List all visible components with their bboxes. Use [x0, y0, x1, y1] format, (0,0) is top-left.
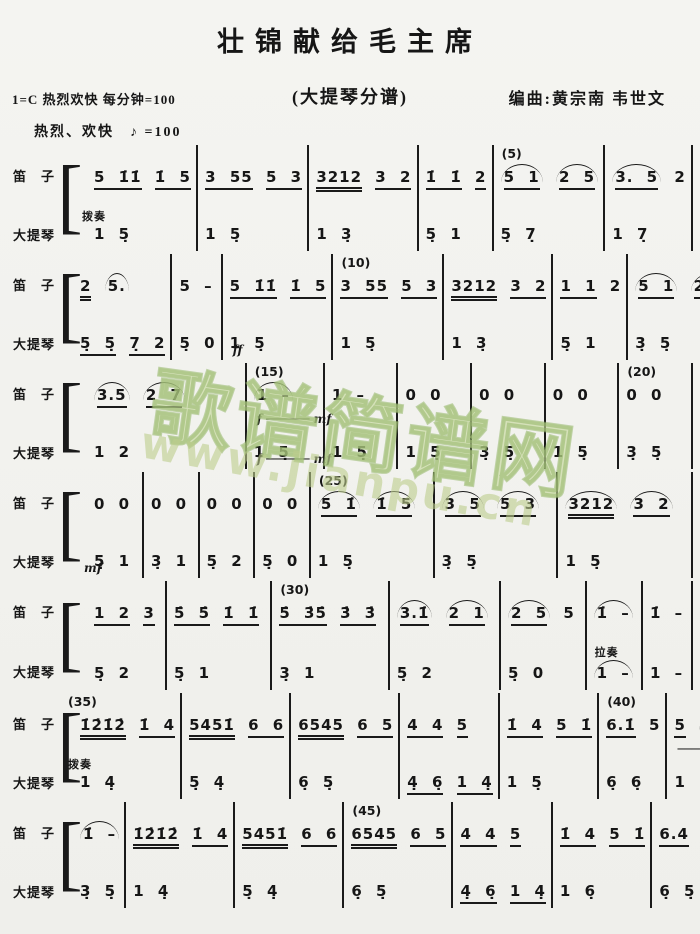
notes-text: 1 6̣ — [560, 881, 645, 901]
measure: 1 – — [324, 363, 398, 429]
notes-text: 5̣ 0 — [179, 333, 215, 353]
notes-text: 4̣ 6̣ 1 4̣ — [407, 772, 492, 792]
measure: 1 2 3 — [74, 581, 166, 647]
dynamic-marking: ff — [233, 343, 243, 357]
measure: 1 5̣ — [332, 320, 443, 360]
measure: 3̣ 1 — [143, 538, 199, 578]
notes-text: 5̣ 4̣ — [189, 772, 284, 792]
measure: 3.5 2 7 — [74, 363, 246, 429]
measure: 1 7̣ — [604, 211, 692, 251]
notes-text: 3̣ 5̣ — [80, 881, 119, 901]
measure: 1 5̣ — [666, 759, 700, 799]
measure: 2 5 5 — [500, 581, 586, 647]
measure: 1̇ – — [60, 802, 125, 868]
notes-text: 5 – — [179, 276, 215, 296]
notes-text: 3̣ 5̣ — [626, 442, 686, 462]
measure-number-marker: (25) — [319, 473, 348, 488]
measure: 0 0 — [143, 472, 199, 538]
flute-instrument-label: 笛 子 — [6, 145, 74, 211]
notes-text: 1̇2̇1̇2̇ 1̇ 4 — [80, 715, 175, 735]
notes-text: 0 0 — [94, 494, 137, 514]
measure: 3212 3 2 — [557, 472, 692, 538]
measure: 1 1 2 — [552, 254, 627, 320]
measure: 5̣ 1 — [552, 320, 627, 360]
tempo-marking: 热烈、欢快 ♪ =100 — [34, 121, 700, 141]
measure: 1 3̣ — [308, 211, 417, 251]
measure: 0 0 — [254, 472, 310, 538]
measure: 拨奏1 5̣ — [74, 211, 197, 251]
measure-number-marker: (20) — [627, 364, 656, 379]
notes-text: 3.5 2 7 — [94, 382, 240, 405]
measure: 1 5̣f ────── mf — [246, 429, 324, 469]
measure: 4 4 5 — [399, 693, 498, 759]
measure: 1 5̣ — [324, 429, 398, 469]
notes-text: 5 1̇. — [674, 712, 700, 735]
measure: 6̣ 6̣ — [598, 759, 666, 799]
notes-text: 5̣ 2 — [94, 663, 160, 683]
measure: 3212 3 2 — [443, 254, 552, 320]
measure: 0 0 — [397, 363, 471, 429]
cello-instrument-label: 大提琴 — [6, 868, 60, 908]
cello-instrument-label: 大提琴 — [6, 538, 74, 578]
measure: 1 5̣ — [197, 211, 308, 251]
notes-text: 0 0 — [151, 494, 193, 514]
notes-text: 3̣ 1 — [151, 551, 193, 571]
notes-text: 5 1̇ 1̇ 5 — [318, 491, 428, 514]
measure: 5 1 2 5 — [627, 254, 700, 320]
measure: 3 55 5 3 — [197, 145, 308, 211]
notes-text: 1 – — [254, 382, 318, 405]
notes-text: 1 – — [332, 385, 392, 405]
notes-text: 5̣ 4̣ — [242, 881, 337, 901]
notes-text: 5451̇ 6 6 — [242, 824, 337, 844]
measure: 拉奏1 – — [586, 647, 642, 690]
measure: 6̣ 5̣ — [651, 868, 700, 908]
notes-text: 5̣ 1 — [426, 224, 487, 244]
notes-text: 0 0 — [405, 385, 465, 405]
notes-text: 3 55 5 3 — [205, 167, 302, 187]
measure: 拨奏1 4̣ — [60, 759, 181, 799]
flute-staff-row: 笛 子0 00 00 00 0(25)5 1̇ 1̇ 53 5 5 33212 … — [6, 472, 692, 538]
measure: 1 4̣ — [125, 868, 234, 908]
notes-text: 1 5̣ — [507, 772, 592, 792]
notes-text: 1 5̣ — [565, 551, 686, 571]
measure: 6.4 5 4 — [651, 802, 700, 868]
notes-text: 3̣ 1 — [279, 663, 383, 683]
measure: 1 5̣ — [397, 429, 471, 469]
measure: 5̇ 5̇ 1̇ 1̇ — [166, 581, 271, 647]
notes-text: 4̣ 6̣ 1 4̣ — [460, 881, 545, 901]
measure: 5̣ 1mf — [74, 538, 143, 578]
cello-staff-row: 大提琴1 21 5̣f ────── mf1 5̣1 5̣3̣ 5̣1 5̣3̣… — [6, 429, 692, 469]
flute-instrument-label: 笛 子 — [6, 693, 60, 759]
notes-text: 1 5̣ — [332, 442, 392, 462]
notes-text: 6545 6 5 — [298, 715, 393, 735]
notes-text: 5̣ 1 — [174, 663, 265, 683]
notes-text: 5 1 2 5 — [635, 273, 700, 296]
measure: 5̣ 2 — [74, 647, 166, 690]
notes-text: 1 5̣ — [405, 442, 465, 462]
notes-text: 1 – — [594, 660, 636, 683]
measure-number-marker: (35) — [68, 694, 97, 709]
notes-text: 1 5̣ — [674, 772, 700, 792]
score-page: 壮锦献给毛主席 1=C 热烈欢快 每分钟=100 (大提琴分谱) 编曲:黄宗南 … — [0, 0, 700, 934]
measure: 5451̇ 6 6 — [234, 802, 343, 868]
measure: 1 5̣ — [557, 538, 692, 578]
flute-instrument-label: 笛 子 — [6, 802, 60, 868]
systems-container: [笛 子5 1̇1̇ 1̇ 53 55 5 33212 3 21̇ 1̇ 2(5… — [0, 145, 700, 908]
notes-text: 1 5̣ — [553, 442, 613, 462]
measure: 3 5 5 3 — [434, 472, 558, 538]
measure: 5̣ 5̣ 7̣ 2 — [60, 320, 171, 360]
notes-text: 1 4̣ — [133, 881, 228, 901]
notes-text: 3212 3 2 — [565, 491, 686, 514]
cello-instrument-label: 大提琴 — [6, 320, 60, 360]
technique-label: 拨奏 — [68, 756, 92, 772]
notes-text: 1 1 2 — [560, 276, 621, 296]
measure: 3212 3 2 — [308, 145, 417, 211]
notes-text: 5 1̇1̇ 1̇ 5 — [230, 276, 327, 296]
measure: 1̇ – — [642, 581, 692, 647]
notes-text: 1 4̣ — [80, 772, 175, 792]
notes-text: 1̇ 4 5 1̇ — [560, 824, 645, 844]
notes-text: 3̣ 5̣ — [635, 333, 700, 353]
notes-text: 1 – — [650, 663, 686, 683]
measure: 5 1̇. ────── — [666, 693, 700, 759]
composer-credit: 编曲:黄宗南 韦世文 — [509, 85, 666, 109]
page-title: 壮锦献给毛主席 — [0, 0, 700, 59]
measure: (30)5̇ 3̇5̇ 3̇ 3̇ — [271, 581, 389, 647]
measure: 1 5̣ — [310, 538, 434, 578]
measure: 3̣ 5̣ — [471, 429, 545, 469]
measure-number-marker: (40) — [607, 694, 636, 709]
measure: 4 4 5 — [452, 802, 551, 868]
measure: 1̇ – — [586, 581, 642, 647]
notes-text: 1̇2̇1̇2̇ 1̇ 4 — [133, 824, 228, 844]
notes-text: 1 5̣ — [318, 551, 428, 571]
measure: 6545 6 5 — [290, 693, 399, 759]
flute-staff-row: 笛 子3.5 2 7(15)1 –f ────── mf1 –0 00 00 0… — [6, 363, 692, 429]
notes-text: 6̣ 6̣ — [606, 772, 660, 792]
measure-number-marker: (5) — [502, 146, 522, 161]
dynamic-marking: mf — [84, 561, 102, 575]
notes-text: 0 0 — [479, 385, 539, 405]
notes-text: 1̇ – — [80, 821, 119, 844]
notes-text: 3. 5 2 — [612, 164, 686, 187]
notes-text: 5̇ 3̇5̇ 3̇ 3̇ — [279, 603, 383, 623]
measure: (10)3 55 5 3 — [332, 254, 443, 320]
notes-text: 2 5 5 — [508, 600, 580, 623]
measure: 2 5. — [60, 254, 171, 320]
measure: (20)0 0 — [618, 363, 692, 429]
notes-text: 5̣ 2 — [207, 551, 249, 571]
notes-text: 6.4 5 4 — [659, 824, 700, 844]
measure: 1̇ 4 5 1̇ — [552, 802, 651, 868]
notes-text: 5̣ 0 — [262, 551, 304, 571]
notes-text: 1 5̣ — [230, 333, 327, 353]
notes-text: 1 5̣ — [205, 224, 302, 244]
measure: (40)6.1̇ 5 — [598, 693, 666, 759]
measure: 3̣ 5̣ — [627, 320, 700, 360]
notes-text: 5̇ 5̇ 1̇ 1̇ — [174, 603, 265, 623]
measure: 4̣ 6̣ 1 4̣ — [399, 759, 498, 799]
measure: 5̣ 2 — [389, 647, 500, 690]
measure: 1 – — [642, 647, 692, 690]
measure-number-marker: (15) — [255, 364, 284, 379]
cello-staff-row: 大提琴5̣ 1mf3̣ 15̣ 25̣ 01 5̣3̣ 5̣1 5̣ — [6, 538, 692, 578]
dynamic-marking: f ────── mf — [257, 412, 332, 426]
measure: 0 0 — [471, 363, 545, 429]
measure: 0 0 — [199, 472, 255, 538]
notes-text: 1 3̣ — [316, 224, 411, 244]
notes-text: 5̣ 0 — [508, 663, 580, 683]
measure: 6̣ 5̣ — [343, 868, 452, 908]
notes-text: 6.1̇ 5 — [606, 715, 660, 735]
measure: 5 1̇1̇ 1̇ 5 — [74, 145, 197, 211]
measure: 1̇ 4 5 1̇ — [499, 693, 598, 759]
flute-staff-row: 笛 子1̇ –1̇2̇1̇2̇ 1̇ 45451̇ 6 6(45)6545 6 … — [6, 802, 700, 868]
notes-text: 5̣ 1 — [560, 333, 621, 353]
measure: 3. 5 2 — [604, 145, 692, 211]
system-7: [笛 子1̇ –1̇2̇1̇2̇ 1̇ 45451̇ 6 6(45)6545 6… — [6, 802, 692, 908]
cello-staff-row: 大提琴5̣ 5̣ 7̣ 25̣ 01 5̣ff1 5̣1 3̣5̣ 13̣ 5̣ — [6, 320, 700, 360]
flute-staff-row: 笛 子1 2 35̇ 5̇ 1̇ 1̇(30)5̇ 3̇5̇ 3̇ 3̇3.1̇… — [6, 581, 692, 647]
notes-text: 1̇ – — [650, 603, 686, 623]
flute-instrument-label: 笛 子 — [6, 363, 74, 429]
notes-text: 1̇ 1̇ 2 — [426, 167, 487, 187]
notes-text: 3.1̇ 2 1 — [397, 600, 494, 623]
cello-instrument-label: 大提琴 — [6, 647, 74, 690]
measure: 5 1̇1̇ 1̇ 5 — [222, 254, 333, 320]
notes-text: 6̣ 5̣ — [351, 881, 446, 901]
notes-text: 1 2 3 — [94, 603, 160, 623]
system-6: [笛 子(35)1̇2̇1̇2̇ 1̇ 45451̇ 6 66545 6 54 … — [6, 693, 692, 799]
notes-text: 6̣ 5̣ — [298, 772, 393, 792]
measure: 1 5̣ff — [222, 320, 333, 360]
notes-text: 5 1̇1̇ 1̇ 5 — [94, 167, 191, 187]
notes-text: 3 55 5 3 — [340, 276, 437, 296]
flute-instrument-label: 笛 子 — [6, 254, 60, 320]
notes-text: 5̣ 7̣ — [501, 224, 599, 244]
notes-text: 4 4 5 — [407, 715, 492, 735]
measure-number-marker: (10) — [341, 255, 370, 270]
notes-text: 5 1 2 5 — [501, 164, 599, 187]
measure-number-marker: (45) — [352, 803, 381, 818]
measure: 5̣ 0 — [171, 320, 221, 360]
notes-text: 3̣ 5̣ — [479, 442, 539, 462]
notes-text: 5̣ 5̣ 7̣ 2 — [80, 333, 165, 353]
notes-text: 4 4 5 — [460, 824, 545, 844]
notes-text: 2 5. — [80, 273, 165, 296]
cello-instrument-label: 大提琴 — [6, 211, 74, 251]
notes-text: 3̣ 5̣ — [442, 551, 552, 571]
notes-text: 1̇ 4 5 1̇ — [507, 715, 592, 735]
cello-staff-row: 大提琴3̣ 5̣1 4̣5̣ 4̣6̣ 5̣4̣ 6̣ 1 4̣1 6̣6̣ 5… — [6, 868, 700, 908]
notes-text: 0 0 — [553, 385, 613, 405]
system-5: [笛 子1 2 35̇ 5̇ 1̇ 1̇(30)5̇ 3̇5̇ 3̇ 3̇3.1… — [6, 581, 692, 690]
notes-text: 1̇ – — [594, 600, 636, 623]
dynamic-marking: ────── — [677, 742, 700, 756]
header-meta-row: 1=C 热烈欢快 每分钟=100 (大提琴分谱) 编曲:黄宗南 韦世文 — [0, 83, 700, 111]
measure: 5̣ 0 — [500, 647, 586, 690]
measure: 1 2 — [74, 429, 246, 469]
cello-instrument-label: 大提琴 — [6, 759, 60, 799]
flute-instrument-label: 笛 子 — [6, 581, 74, 647]
technique-label: 拉奏 — [595, 644, 619, 660]
measure: (5)5 1 2 5 — [493, 145, 605, 211]
notes-text: 3212 3 2 — [316, 167, 411, 187]
flute-staff-row: 笛 子(35)1̇2̇1̇2̇ 1̇ 45451̇ 6 66545 6 54 4… — [6, 693, 700, 759]
notes-text: 6̣ 5̣ — [659, 881, 700, 901]
measure: 3̣ 5̣ — [60, 868, 125, 908]
system-3: [笛 子3.5 2 7(15)1 –f ────── mf1 –0 00 00 … — [6, 363, 692, 469]
system-2: [笛 子2 5.5 –5 1̇1̇ 1̇ 5(10)3 55 5 33212 3… — [6, 254, 692, 360]
notes-text: 5̣ 2 — [397, 663, 494, 683]
notes-text: 6545 6 5 — [351, 824, 446, 844]
notes-text: 3212 3 2 — [451, 276, 546, 296]
notes-text: 1 3̣ — [451, 333, 546, 353]
measure: 5̣ 2 — [199, 538, 255, 578]
measure: 0 0 — [545, 363, 619, 429]
notes-text: 3 5 5 3 — [442, 491, 552, 514]
measure: (35)1̇2̇1̇2̇ 1̇ 4 — [60, 693, 181, 759]
flute-staff-row: 笛 子2 5.5 –5 1̇1̇ 1̇ 5(10)3 55 5 33212 3 … — [6, 254, 700, 320]
notes-text: 5451̇ 6 6 — [189, 715, 284, 735]
notes-text: 0 0 — [207, 494, 249, 514]
measure-number-marker: (30) — [280, 582, 309, 597]
measure: 1 5̣ — [499, 759, 598, 799]
notes-text: 1 2 — [94, 442, 240, 462]
measure: 3̣ 5̣ — [618, 429, 692, 469]
measure: (25)5 1̇ 1̇ 5 — [310, 472, 434, 538]
cello-instrument-label: 大提琴 — [6, 429, 74, 469]
notes-text: 0 0 — [626, 385, 686, 405]
measure: 5451̇ 6 6 — [181, 693, 290, 759]
measure: 3.1̇ 2 1 — [389, 581, 500, 647]
measure: 5̣ 1 — [418, 211, 493, 251]
cello-staff-row: 大提琴拨奏1 5̣1 5̣1 3̣5̣ 15̣ 7̣1 7̣ — [6, 211, 692, 251]
measure: 3̣ 5̣ — [434, 538, 558, 578]
system-4: [笛 子0 00 00 00 0(25)5 1̇ 1̇ 53 5 5 33212… — [6, 472, 692, 578]
measure: 5̣ 4̣ — [181, 759, 290, 799]
measure: 1̇2̇1̇2̇ 1̇ 4 — [125, 802, 234, 868]
measure: (45)6545 6 5 — [343, 802, 452, 868]
measure: 5̣ 0 — [254, 538, 310, 578]
measure: 5 – — [171, 254, 221, 320]
system-1: [笛 子5 1̇1̇ 1̇ 53 55 5 33212 3 21̇ 1̇ 2(5… — [6, 145, 692, 251]
notes-text: 1 7̣ — [612, 224, 686, 244]
measure: 3̣ 1 — [271, 647, 389, 690]
cello-staff-row: 大提琴拨奏1 4̣5̣ 4̣6̣ 5̣4̣ 6̣ 1 4̣1 5̣6̣ 6̣1 … — [6, 759, 700, 799]
measure: 5̣ 1 — [166, 647, 271, 690]
measure: 1 3̣ — [443, 320, 552, 360]
technique-label: 拨奏 — [82, 208, 106, 224]
measure: (15)1 –f ────── mf — [246, 363, 324, 429]
measure: 0 0 — [74, 472, 143, 538]
measure: 6̣ 5̣ — [290, 759, 399, 799]
measure: 1̇ 1̇ 2 — [418, 145, 493, 211]
measure: 5̣ 7̣ — [493, 211, 605, 251]
measure: 1 6̣ — [552, 868, 651, 908]
notes-text: 0 0 — [262, 494, 304, 514]
dynamic-marking: f ────── mf — [257, 452, 332, 466]
notes-text: 1 5̣ — [340, 333, 437, 353]
measure: 5̣ 4̣ — [234, 868, 343, 908]
cello-staff-row: 大提琴5̣ 25̣ 13̣ 15̣ 25̣ 0拉奏1 –1 – — [6, 647, 692, 690]
notes-text: 1 5̣ — [94, 224, 191, 244]
measure: 4̣ 6̣ 1 4̣ — [452, 868, 551, 908]
flute-instrument-label: 笛 子 — [6, 472, 74, 538]
flute-staff-row: 笛 子5 1̇1̇ 1̇ 53 55 5 33212 3 21̇ 1̇ 2(5)… — [6, 145, 692, 211]
measure: 1 5̣ — [545, 429, 619, 469]
